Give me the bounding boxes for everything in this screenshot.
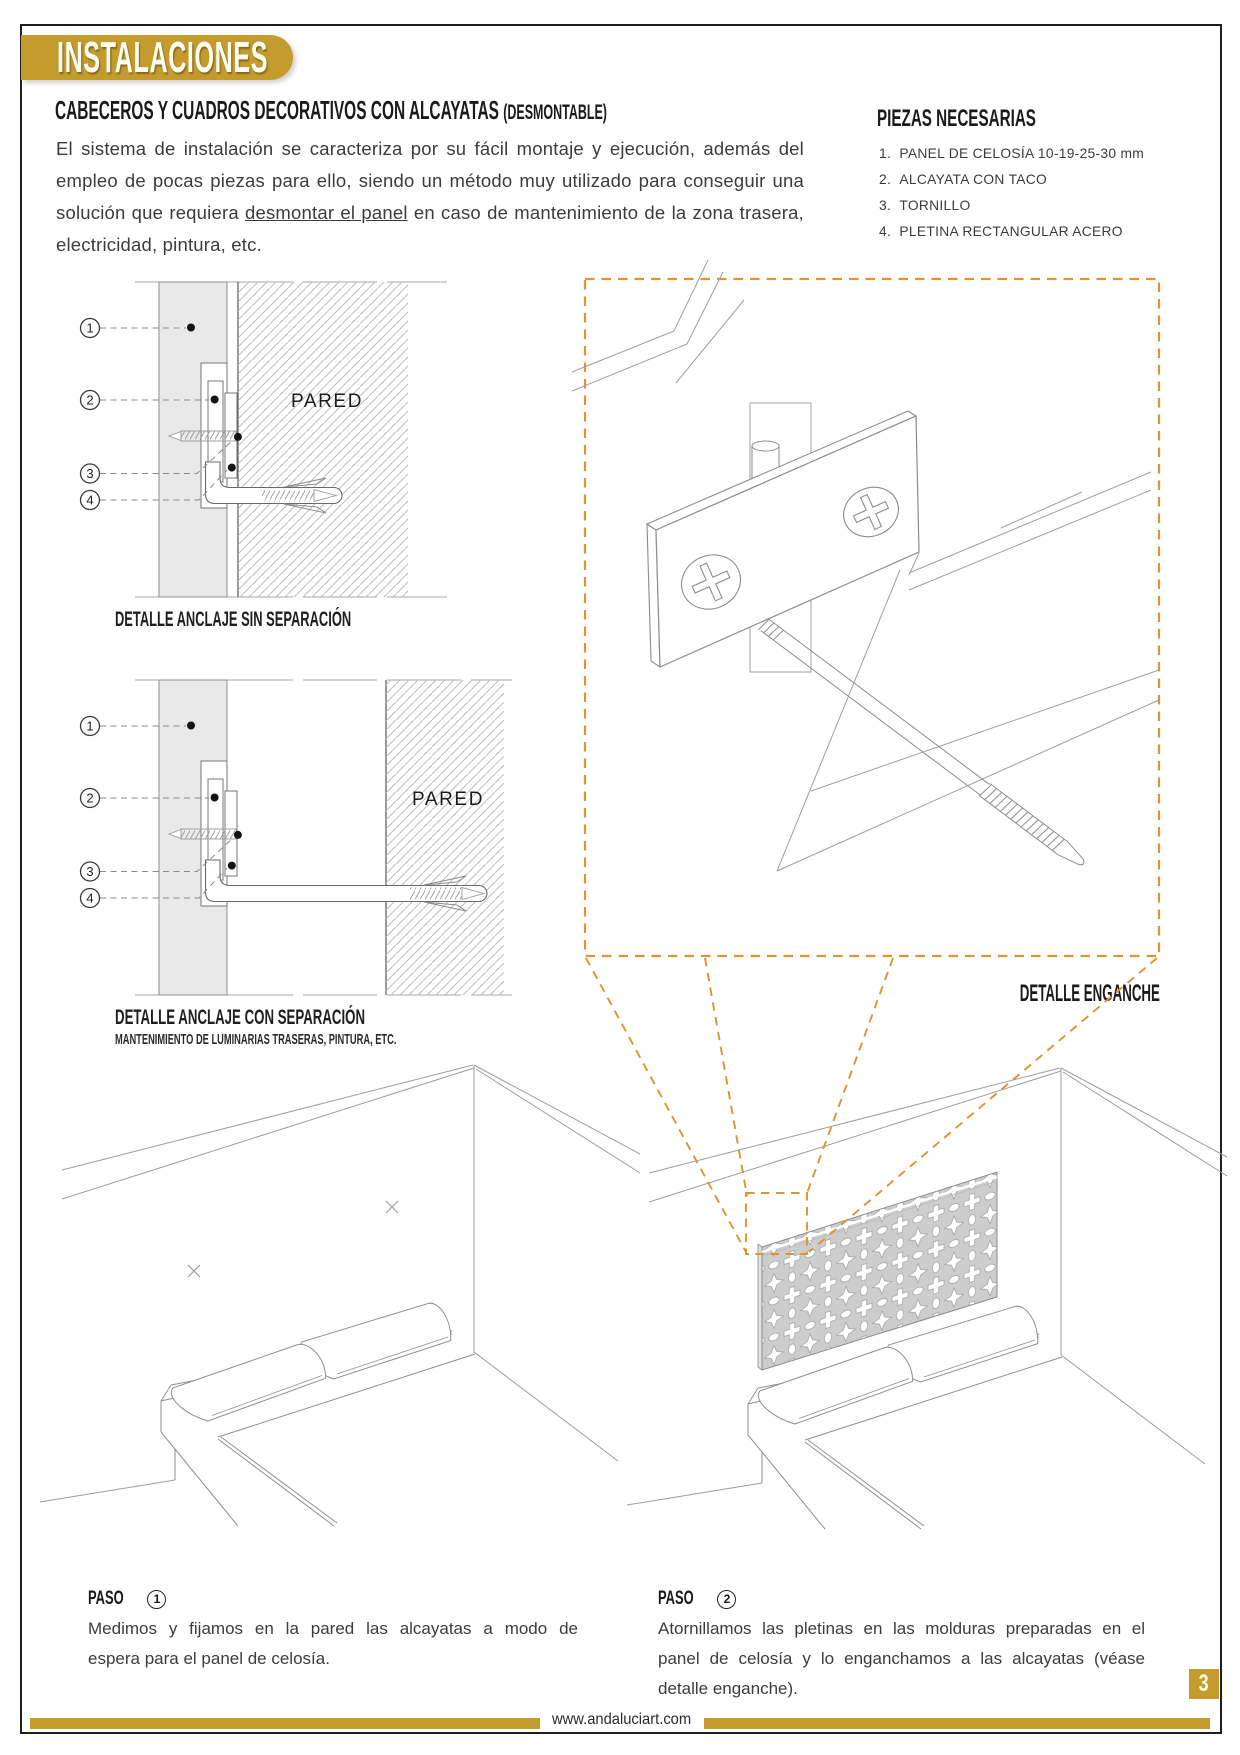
svg-text:PARED: PARED [291, 391, 363, 412]
svg-text:1: 1 [86, 719, 93, 734]
svg-text:2: 2 [86, 393, 93, 408]
svg-text:PARED: PARED [412, 789, 484, 810]
svg-text:4: 4 [86, 891, 93, 906]
svg-text:3: 3 [86, 466, 93, 481]
svg-text:3: 3 [86, 864, 93, 879]
svg-text:1: 1 [86, 321, 93, 336]
svg-text:2: 2 [86, 791, 93, 806]
svg-text:4: 4 [86, 493, 93, 508]
